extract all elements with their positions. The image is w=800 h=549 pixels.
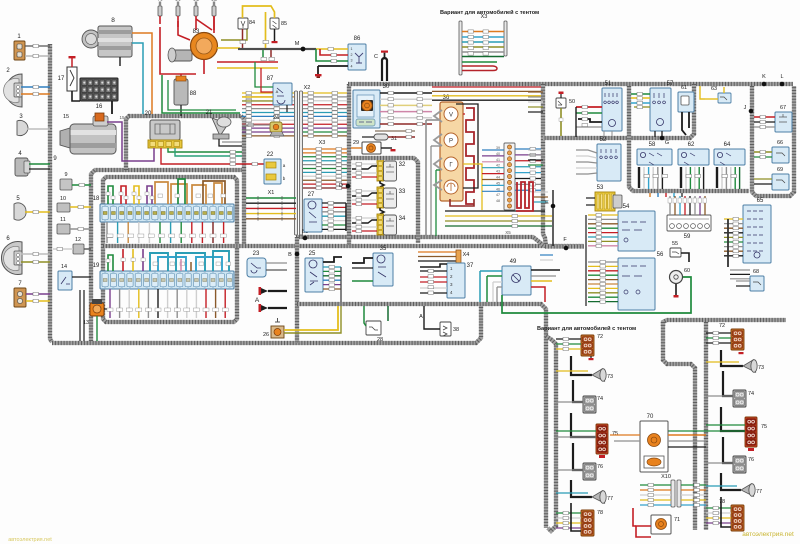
svg-text:Вариант для автомобилей с тент: Вариант для автомобилей с тентом [537, 325, 636, 332]
svg-text:58: 58 [649, 142, 656, 148]
svg-text:63: 63 [711, 86, 717, 92]
svg-text:18: 18 [93, 196, 100, 202]
svg-text:34: 34 [399, 216, 406, 222]
svg-text:30: 30 [383, 84, 390, 90]
svg-text:J: J [744, 105, 747, 111]
svg-text:78: 78 [597, 510, 603, 516]
svg-text:19: 19 [93, 263, 100, 269]
svg-text:56: 56 [657, 252, 664, 258]
svg-text:23: 23 [253, 251, 260, 257]
svg-text:71: 71 [674, 517, 680, 523]
svg-text:78: 78 [719, 499, 725, 505]
svg-text:11: 11 [60, 217, 66, 223]
svg-text:68: 68 [753, 269, 759, 275]
svg-text:B: B [288, 252, 292, 258]
svg-text:13: 13 [83, 320, 89, 326]
svg-text:48: 48 [496, 199, 500, 203]
svg-text:25: 25 [309, 251, 316, 257]
svg-text:80: 80 [175, 0, 181, 3]
svg-text:8: 8 [111, 17, 115, 24]
svg-text:12: 12 [75, 237, 81, 243]
svg-text:86: 86 [354, 36, 361, 42]
svg-text:29: 29 [353, 140, 359, 146]
svg-text:52: 52 [600, 137, 607, 143]
svg-text:M: M [295, 41, 300, 47]
svg-text:Вариант для автомобилей с тент: Вариант для автомобилей с тентом [440, 9, 539, 16]
svg-text:51: 51 [605, 81, 612, 87]
svg-text:27: 27 [308, 192, 315, 198]
svg-text:66: 66 [777, 140, 783, 146]
svg-text:1: 1 [351, 47, 353, 51]
svg-text:82: 82 [211, 0, 217, 3]
svg-text:X10: X10 [661, 474, 671, 480]
svg-text:47: 47 [496, 193, 500, 197]
svg-text:G: G [665, 140, 669, 146]
svg-text:76: 76 [748, 457, 754, 463]
svg-text:67: 67 [780, 105, 786, 111]
svg-text:X3: X3 [319, 140, 326, 146]
svg-text:X5: X5 [505, 230, 511, 235]
svg-text:15: 15 [63, 114, 69, 120]
svg-text:A: A [419, 314, 423, 320]
svg-text:V: V [449, 112, 453, 118]
svg-text:22: 22 [267, 152, 274, 158]
svg-text:77: 77 [607, 496, 613, 502]
svg-text:70: 70 [647, 414, 654, 420]
svg-text:33: 33 [399, 189, 406, 195]
svg-text:X3: X3 [481, 14, 488, 20]
svg-text:81: 81 [193, 0, 199, 3]
svg-text:2: 2 [351, 53, 353, 57]
svg-text:15: 15 [119, 115, 125, 120]
svg-text:72: 72 [597, 334, 603, 340]
svg-text:62: 62 [688, 142, 695, 148]
svg-text:50: 50 [569, 99, 575, 105]
svg-text:24: 24 [273, 115, 279, 121]
svg-text:автоэлектрия.net: автоэлектрия.net [8, 537, 52, 543]
svg-text:16: 16 [96, 104, 103, 110]
svg-text:C: C [374, 54, 378, 60]
svg-text:49: 49 [510, 259, 517, 265]
svg-text:73: 73 [607, 374, 613, 380]
svg-text:X1: X1 [268, 190, 275, 196]
svg-text:37: 37 [467, 263, 474, 269]
svg-text:X4: X4 [463, 252, 470, 258]
svg-text:59: 59 [684, 234, 691, 240]
svg-text:35: 35 [380, 246, 387, 252]
svg-text:75: 75 [761, 424, 767, 430]
svg-text:74: 74 [748, 391, 754, 397]
svg-text:83: 83 [193, 29, 200, 35]
svg-text:10: 10 [60, 196, 66, 202]
svg-text:21: 21 [206, 110, 213, 116]
svg-text:87: 87 [267, 76, 274, 82]
svg-text:автоэлектрия.net: автоэлектрия.net [742, 531, 794, 538]
svg-text:32: 32 [399, 162, 406, 168]
svg-text:L: L [780, 74, 783, 80]
svg-text:76: 76 [597, 464, 603, 470]
svg-text:A: A [255, 297, 260, 304]
svg-text:38: 38 [453, 327, 459, 333]
svg-text:17: 17 [58, 76, 65, 82]
svg-text:79: 79 [157, 0, 163, 3]
svg-text:85: 85 [281, 21, 287, 27]
svg-text:P: P [449, 138, 453, 144]
svg-text:20: 20 [145, 111, 152, 117]
svg-text:28: 28 [377, 337, 383, 343]
svg-text:4: 4 [351, 64, 353, 68]
svg-text:84: 84 [249, 20, 255, 26]
svg-text:55: 55 [672, 241, 678, 247]
svg-text:9: 9 [64, 172, 67, 178]
svg-text:E: E [545, 200, 549, 206]
svg-text:14: 14 [61, 264, 67, 270]
svg-text:K: K [762, 74, 766, 80]
svg-text:A: A [276, 89, 279, 94]
svg-text:D: D [339, 183, 343, 189]
svg-text:3: 3 [351, 59, 353, 63]
svg-text:88: 88 [190, 91, 197, 97]
svg-text:65: 65 [757, 198, 764, 204]
svg-text:69: 69 [777, 167, 783, 173]
svg-text:61: 61 [681, 85, 687, 91]
svg-text:54: 54 [623, 204, 630, 210]
svg-text:26: 26 [263, 332, 269, 338]
svg-text:77: 77 [756, 489, 762, 495]
svg-text:72: 72 [719, 323, 725, 329]
svg-text:57: 57 [667, 81, 674, 87]
svg-text:75: 75 [612, 431, 618, 437]
svg-text:X2: X2 [304, 85, 311, 91]
svg-text:53: 53 [597, 185, 604, 191]
svg-text:73: 73 [758, 365, 764, 371]
svg-text:60: 60 [684, 268, 690, 274]
svg-text:64: 64 [724, 142, 731, 148]
svg-text:74: 74 [597, 396, 603, 402]
